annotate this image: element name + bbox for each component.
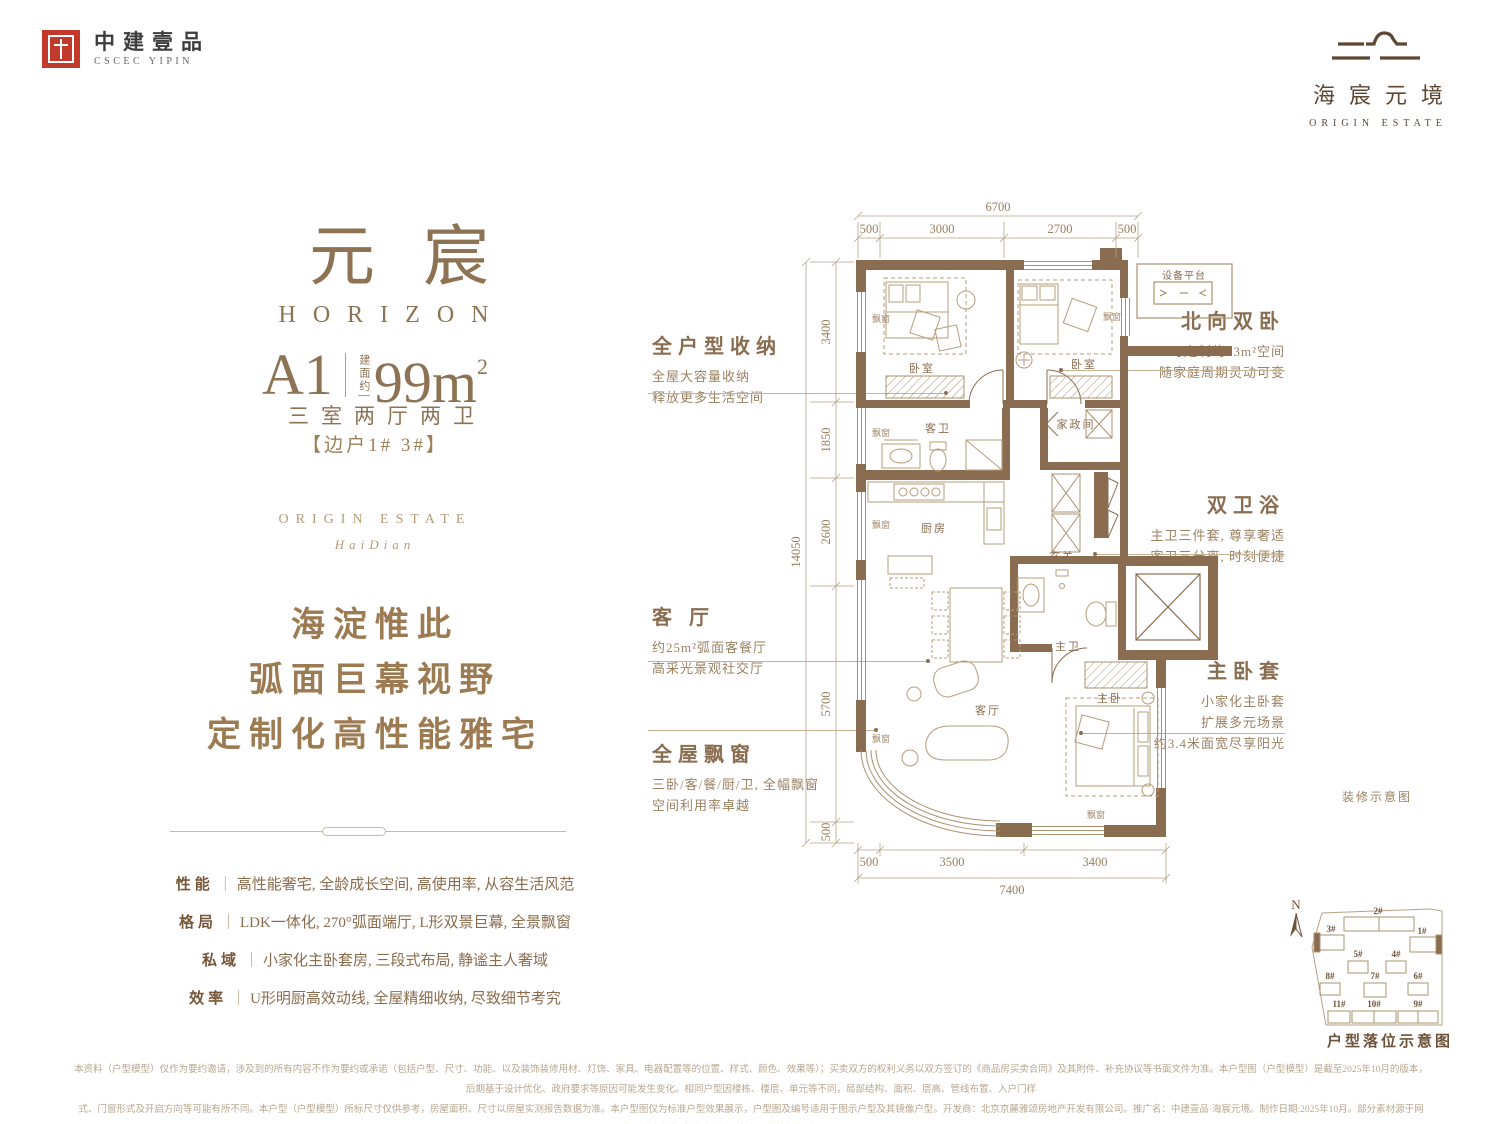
- decoration-note: 装修示意图: [1342, 788, 1412, 805]
- svg-text:500: 500: [860, 222, 879, 236]
- svg-text:飘窗: 飘窗: [1103, 311, 1121, 322]
- cscec-logo-mark-icon: [42, 30, 80, 68]
- svg-text:9#: 9#: [1414, 999, 1424, 1009]
- disclaimer-line-1: 本资料（户型模型）仅作为要约邀请，涉及到的所有内容不作为要约或承诺（包括户型、尺…: [70, 1060, 1432, 1100]
- svg-text:5700: 5700: [819, 692, 833, 717]
- feature-list: 性能｜高性能奢宅, 全龄成长空间, 高使用率, 从容生活风范 格局｜LDK一体化…: [120, 866, 630, 1018]
- unit-position-tag: 【边户1# 3#】: [175, 430, 575, 457]
- cscec-logo-cn: 中建壹品: [94, 31, 210, 53]
- svg-text:飘窗: 飘窗: [872, 313, 890, 324]
- site-plan: N 2# 3# 1# 5# 4# 8# 7# 6# 11# 10#: [1282, 885, 1487, 1035]
- svg-text:500: 500: [860, 855, 879, 869]
- poster-canvas: 中建壹品 CSCEC YIPIN 海宸元境 ORIGIN ESTATE 元宸 H…: [0, 0, 1502, 1124]
- label-guest-bath: 客卫: [925, 421, 951, 435]
- svg-text:3500: 3500: [940, 855, 965, 869]
- area-prefix: 建面约: [358, 354, 370, 396]
- svg-text:飘窗: 飘窗: [872, 733, 890, 744]
- estate-logo: 海宸元境 ORIGIN ESTATE: [1288, 28, 1468, 129]
- slogan-1: 海淀惟此: [140, 598, 610, 653]
- feature-row: 私域｜小家化主卧套房, 三段式布局, 静谧主人奢域: [120, 942, 630, 980]
- svg-text:5#: 5#: [1354, 949, 1364, 959]
- svg-text:飘窗: 飘窗: [872, 519, 890, 530]
- area-sup: 2: [477, 354, 488, 379]
- plan-walls: [856, 248, 1232, 837]
- svg-text:4#: 4#: [1392, 949, 1402, 959]
- feature-row: 效率｜U形明厨高效动线, 全屋精细收纳, 尽致细节考究: [120, 980, 630, 1018]
- svg-text:10#: 10#: [1367, 999, 1381, 1009]
- svg-text:飘窗: 飘窗: [872, 427, 890, 438]
- svg-text:6700: 6700: [986, 200, 1011, 214]
- svg-text:14050: 14050: [790, 536, 803, 567]
- label-master-bath: 主卫: [1055, 640, 1081, 653]
- svg-text:2700: 2700: [1048, 222, 1073, 236]
- dimension-labels: 6700 500 3000 2700 500 3400 1850 2600 57…: [790, 200, 1136, 897]
- label-kitchen: 厨房: [921, 522, 947, 535]
- unit-code: A1: [262, 346, 333, 404]
- curved-bay-window: [861, 750, 1000, 836]
- ornament-divider: [170, 827, 566, 836]
- svg-text:11#: 11#: [1332, 999, 1346, 1009]
- unit-layout: 三室两厅两卫: [175, 400, 587, 430]
- disclaimer: 本资料（户型模型）仅作为要约邀请，涉及到的所有内容不作为要约或承诺（包括户型、尺…: [70, 1060, 1432, 1124]
- feature-row: 格局｜LDK一体化, 270°弧面端厅, L形双景巨幕, 全景飘窗: [120, 904, 630, 942]
- svg-text:2600: 2600: [819, 520, 833, 545]
- svg-text:2#: 2#: [1374, 906, 1384, 916]
- svg-text:飘窗: 飘窗: [1087, 809, 1105, 820]
- elevator-shaft: [1136, 574, 1200, 640]
- disclaimer-line-2: 式、门窗形式及开启方向等可能有所不同。本户型（户型模型）所标尺寸仅供参考，房屋面…: [70, 1100, 1432, 1124]
- svg-text:1850: 1850: [819, 428, 833, 453]
- svg-text:500: 500: [1118, 222, 1137, 236]
- callout-living: 客 厅 约25m²弧面客餐厅 高采光景观社交厅: [652, 601, 767, 679]
- slogan-block: 海淀惟此 弧面巨幕视野 定制化高性能雅宅: [140, 598, 610, 763]
- label-foyer: 玄关: [1049, 549, 1075, 563]
- slogan-3: 定制化高性能雅宅: [140, 708, 610, 763]
- svg-text:3000: 3000: [930, 222, 955, 236]
- label-master-bedroom: 主卧: [1097, 692, 1123, 705]
- site-plan-caption: 户型落位示意图: [1300, 1030, 1480, 1051]
- compass-label: N: [1291, 897, 1301, 912]
- feature-row: 性能｜高性能奢宅, 全龄成长空间, 高使用率, 从容生活风范: [120, 866, 630, 904]
- cscec-logo: 中建壹品 CSCEC YIPIN: [42, 30, 210, 68]
- floor-plan: 卧室 卧室 家政间 客卫 厨房 玄关 主卫 主卧 客厅 飘窗 飘窗 飘窗 飘窗 …: [790, 195, 1290, 905]
- cscec-logo-en: CSCEC YIPIN: [94, 56, 210, 67]
- estate-en-line: ORIGIN ESTATE: [175, 512, 575, 528]
- callout-storage: 全户型收纳 全屋大容量收纳 释放更多生活空间: [652, 330, 782, 408]
- estate-logo-en: ORIGIN ESTATE: [1288, 118, 1468, 129]
- svg-text:8#: 8#: [1326, 971, 1336, 981]
- label-living-room: 客厅: [975, 703, 1001, 717]
- svg-text:1#: 1#: [1418, 926, 1428, 936]
- svg-text:3400: 3400: [819, 320, 833, 345]
- compass-needle-icon: [1290, 913, 1296, 937]
- estate-en-sub: HaiDian: [175, 537, 575, 553]
- svg-text:7#: 7#: [1371, 971, 1381, 981]
- svg-text:500: 500: [819, 823, 833, 842]
- svg-text:7400: 7400: [1000, 883, 1025, 897]
- label-bedroom-1: 卧室: [909, 361, 935, 375]
- label-bedroom-2: 卧室: [1071, 357, 1097, 371]
- svg-text:3400: 3400: [1083, 855, 1108, 869]
- estate-roof-icon: [1308, 28, 1448, 72]
- unit-title-cn: 元宸: [175, 203, 623, 299]
- label-equipment-platform: 设备平台: [1162, 269, 1206, 282]
- label-laundry: 家政间: [1057, 417, 1096, 431]
- unit-title-en: HORIZON: [175, 302, 592, 329]
- estate-logo-cn: 海宸元境: [1288, 78, 1468, 110]
- slogan-2: 弧面巨幕视野: [140, 653, 610, 708]
- site-building-labels: 2# 3# 1# 5# 4# 8# 7# 6# 11# 10# 9#: [1326, 906, 1428, 1009]
- svg-text:3#: 3#: [1327, 924, 1337, 934]
- svg-text:6#: 6#: [1414, 971, 1424, 981]
- area-divider: [345, 353, 346, 397]
